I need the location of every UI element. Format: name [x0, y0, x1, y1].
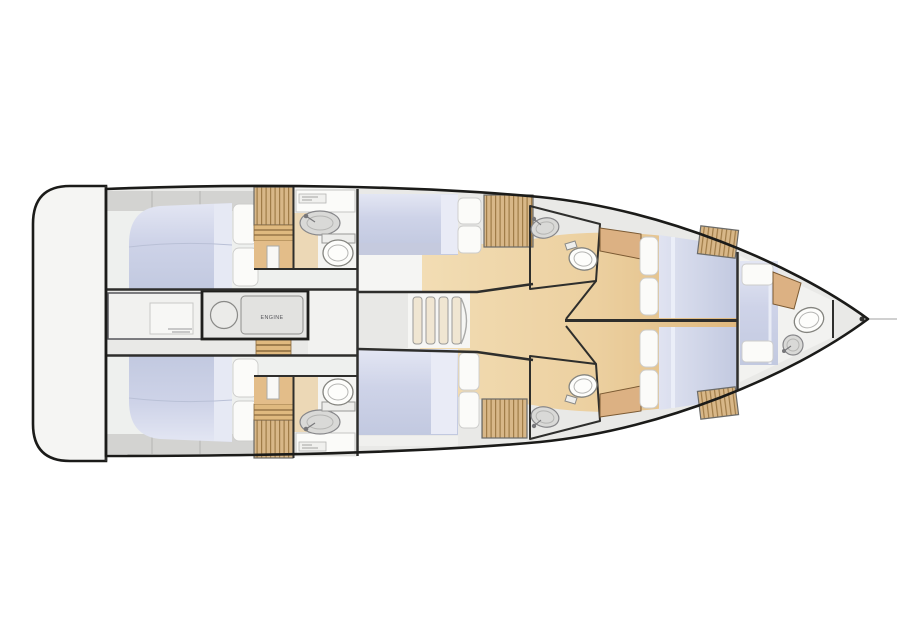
wardrobe-slats: [482, 399, 527, 438]
lower-landing: [308, 284, 357, 360]
engine-room: ENGINE: [202, 291, 308, 339]
companionway-stairs: [358, 293, 470, 348]
pillow: [458, 226, 481, 253]
stair-step: [439, 297, 448, 344]
swim-platform: [33, 186, 106, 461]
stair-step: [426, 297, 435, 344]
pillow: [742, 341, 773, 362]
pillow: [640, 237, 658, 275]
stair-step: [413, 297, 422, 344]
shelf-slats: [697, 226, 738, 258]
pillow: [458, 198, 481, 224]
sink-icon: [783, 335, 803, 355]
pillow: [459, 353, 479, 390]
floor-plan-canvas: ENGINE: [0, 0, 900, 637]
stair-step: [452, 297, 461, 344]
wardrobe-slats: [484, 195, 533, 247]
companionway-steps: [254, 187, 293, 269]
pillow: [742, 264, 773, 285]
pillow: [459, 392, 479, 428]
yacht-deck-plan: ENGINE: [0, 0, 900, 637]
pillow: [640, 278, 658, 315]
engine-access-hatch: [211, 302, 238, 329]
technical-room: [108, 293, 202, 339]
engine-room-label: ENGINE: [260, 315, 283, 321]
